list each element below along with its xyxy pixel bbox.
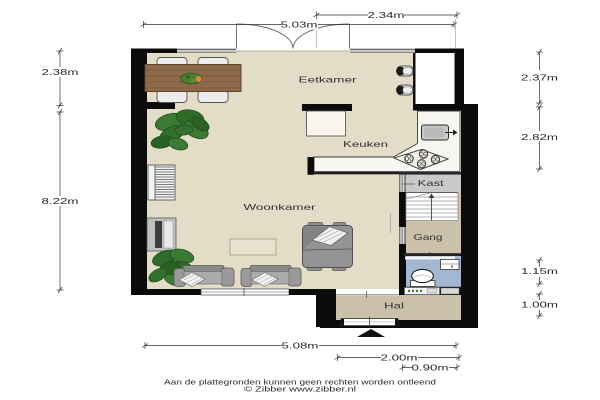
svg-text:© Zibber www.zibber.nl: © Zibber www.zibber.nl: [244, 386, 357, 394]
svg-text:2.00m: 2.00m: [381, 354, 418, 363]
svg-text:Kast: Kast: [418, 178, 445, 188]
svg-text:Keuken: Keuken: [343, 139, 388, 149]
svg-text:2.34m: 2.34m: [368, 11, 405, 20]
svg-text:5.03m: 5.03m: [281, 21, 318, 30]
svg-text:5.08m: 5.08m: [282, 342, 319, 351]
svg-text:Woonkamer: Woonkamer: [244, 202, 316, 212]
svg-text:0.90m: 0.90m: [412, 364, 449, 373]
svg-text:Hal: Hal: [384, 301, 404, 311]
svg-text:2.38m: 2.38m: [42, 68, 79, 77]
svg-text:1.15m: 1.15m: [521, 267, 558, 276]
svg-text:Eetkamer: Eetkamer: [299, 74, 357, 84]
svg-text:2.82m: 2.82m: [521, 133, 558, 142]
svg-text:1.00m: 1.00m: [521, 300, 558, 309]
svg-text:2.37m: 2.37m: [521, 73, 558, 82]
svg-text:Gang: Gang: [414, 232, 443, 242]
svg-text:8.22m: 8.22m: [42, 197, 79, 206]
